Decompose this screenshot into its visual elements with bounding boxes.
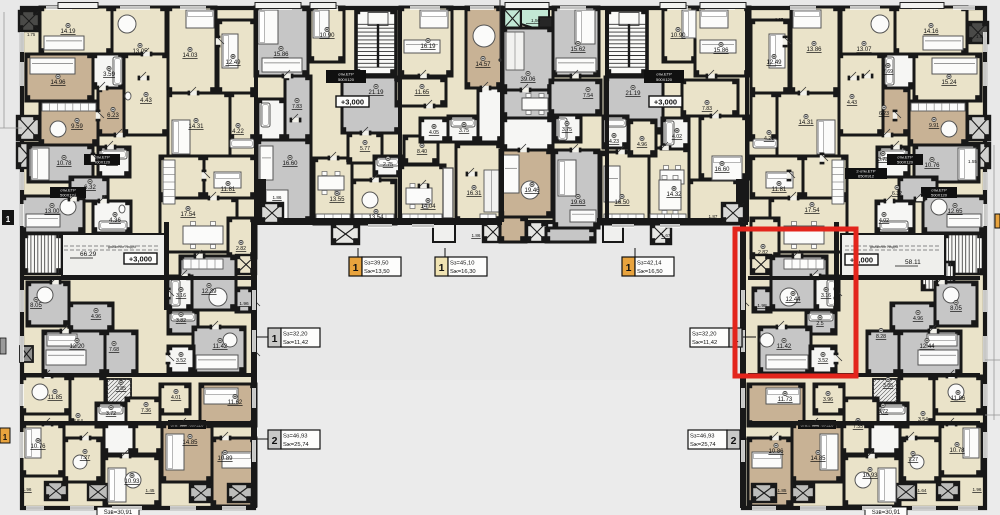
svg-text:10.93: 10.93 [124, 479, 140, 485]
svg-text:движение людей: движение людей [870, 245, 898, 249]
svg-text:+3,000: +3,000 [654, 98, 677, 107]
svg-text:1.96: 1.96 [23, 487, 32, 492]
svg-text:+3,000: +3,000 [341, 98, 364, 107]
svg-text:Sж=25,74: Sж=25,74 [283, 442, 309, 448]
svg-text:Sз=32,20: Sз=32,20 [692, 332, 716, 338]
svg-text:1.86: 1.86 [472, 233, 481, 238]
svg-text:11.73: 11.73 [778, 397, 793, 403]
svg-text:3.72: 3.72 [878, 409, 888, 415]
svg-text:6.32: 6.32 [84, 185, 96, 191]
svg-text:1.86: 1.86 [273, 195, 282, 200]
svg-text:14.32: 14.32 [666, 192, 682, 198]
svg-text:Sз=46,93: Sз=46,93 [690, 434, 714, 440]
svg-text:11.85: 11.85 [48, 395, 63, 401]
svg-text:1: 1 [439, 262, 445, 274]
svg-text:4.36: 4.36 [109, 218, 121, 224]
svg-text:15.86: 15.86 [273, 52, 289, 58]
svg-text:3.52: 3.52 [818, 358, 828, 364]
svg-text:14.85: 14.85 [182, 440, 198, 446]
svg-text:12.65: 12.65 [947, 209, 963, 215]
svg-text:5.77: 5.77 [360, 146, 370, 152]
svg-text:+3,000: +3,000 [129, 255, 152, 264]
svg-text:3.16: 3.16 [821, 293, 831, 299]
svg-text:10.93: 10.93 [862, 473, 878, 479]
svg-text:10.86: 10.86 [768, 449, 784, 455]
svg-text:15.24: 15.24 [941, 80, 957, 86]
svg-text:14.85: 14.85 [810, 456, 826, 462]
svg-text:19.63: 19.63 [570, 200, 586, 206]
svg-text:11.62: 11.62 [228, 400, 243, 406]
svg-text:16.50: 16.50 [614, 200, 630, 206]
svg-text:16.31: 16.31 [466, 191, 482, 197]
svg-text:19.46: 19.46 [524, 188, 540, 194]
svg-text:1.64: 1.64 [918, 488, 927, 493]
svg-text:14.31: 14.31 [188, 124, 204, 130]
svg-text:Sж=16,30: Sж=16,30 [450, 269, 476, 275]
svg-text:3.75: 3.75 [459, 128, 469, 134]
svg-text:3.72: 3.72 [106, 411, 116, 417]
svg-text:14.57: 14.57 [475, 62, 491, 68]
svg-text:13.86: 13.86 [806, 47, 822, 53]
svg-text:4.96: 4.96 [91, 314, 101, 320]
svg-text:16.60: 16.60 [714, 167, 730, 173]
svg-text:39.06: 39.06 [520, 77, 536, 83]
svg-text:Sж=13,50: Sж=13,50 [364, 269, 390, 275]
svg-text:4.43: 4.43 [847, 100, 857, 106]
svg-text:4.96: 4.96 [637, 142, 647, 148]
svg-text:11.65: 11.65 [415, 90, 430, 96]
svg-text:7.69: 7.69 [883, 69, 893, 75]
svg-text:4.43: 4.43 [140, 98, 152, 104]
svg-text:2: 2 [272, 435, 278, 447]
svg-text:отм.ЕТР: отм.ЕТР [656, 72, 672, 77]
svg-text:11.81: 11.81 [221, 187, 236, 193]
svg-text:500Х120: 500Х120 [94, 159, 111, 164]
svg-text:7.68: 7.68 [109, 347, 119, 353]
svg-text:4.01: 4.01 [171, 395, 181, 401]
svg-text:16.60: 16.60 [282, 161, 298, 167]
svg-text:1,50: 1,50 [531, 18, 541, 24]
svg-text:14.96: 14.96 [50, 80, 66, 86]
svg-text:1: 1 [353, 262, 359, 274]
svg-text:17.54: 17.54 [180, 212, 196, 218]
svg-text:1.45: 1.45 [146, 488, 155, 493]
svg-text:11.42: 11.42 [213, 344, 228, 350]
svg-text:13.07: 13.07 [856, 47, 872, 53]
svg-text:3.75: 3.75 [562, 127, 572, 133]
svg-text:+3,000: +3,000 [850, 256, 873, 265]
svg-text:9.91: 9.91 [929, 123, 939, 129]
svg-text:6.32: 6.32 [892, 191, 902, 197]
svg-text:12.44: 12.44 [785, 297, 801, 303]
svg-text:4.96: 4.96 [913, 316, 923, 322]
svg-text:4.05: 4.05 [429, 130, 439, 136]
svg-text:16.19: 16.19 [420, 44, 436, 50]
svg-text:7.27: 7.27 [80, 455, 90, 461]
svg-text:1: 1 [272, 333, 278, 345]
svg-text:3.85: 3.85 [883, 383, 893, 389]
svg-text:Sж=11,42: Sж=11,42 [692, 340, 717, 346]
svg-text:10.76: 10.76 [30, 444, 46, 450]
svg-text:Sж=25,74: Sж=25,74 [690, 442, 716, 448]
svg-text:Sзв=30,91: Sзв=30,91 [104, 510, 133, 515]
svg-text:14.04: 14.04 [420, 204, 436, 210]
svg-text:2.5: 2.5 [816, 321, 823, 327]
svg-text:650Х912: 650Х912 [858, 173, 875, 178]
svg-text:3.96: 3.96 [823, 397, 833, 403]
svg-text:9.59: 9.59 [71, 124, 83, 130]
svg-text:8.40: 8.40 [417, 149, 427, 155]
svg-text:11.42: 11.42 [777, 344, 792, 350]
svg-text:3.52: 3.52 [176, 358, 186, 364]
svg-text:1.55: 1.55 [968, 159, 977, 164]
svg-text:14.31: 14.31 [798, 120, 814, 126]
svg-text:7.27: 7.27 [908, 457, 918, 463]
svg-text:3.85: 3.85 [116, 386, 126, 392]
svg-text:4.22: 4.22 [232, 129, 244, 135]
svg-text:3.59: 3.59 [103, 72, 115, 78]
svg-text:1.96: 1.96 [973, 487, 982, 492]
svg-text:1.67: 1.67 [775, 17, 784, 22]
svg-text:Sз=45,10: Sз=45,10 [450, 261, 474, 267]
svg-text:Sж=11,42: Sж=11,42 [283, 340, 308, 346]
svg-text:1.85: 1.85 [778, 488, 787, 493]
svg-text:1.96: 1.96 [239, 301, 249, 307]
svg-text:12.44: 12.44 [919, 344, 935, 350]
svg-text:10.90: 10.90 [319, 33, 335, 39]
svg-text:6.23: 6.23 [879, 111, 889, 117]
svg-text:1: 1 [3, 433, 8, 442]
svg-text:2: 2 [731, 435, 737, 447]
svg-text:Sз=46,93: Sз=46,93 [283, 434, 307, 440]
svg-text:6.23: 6.23 [107, 113, 119, 119]
svg-text:3.73: 3.73 [878, 157, 888, 163]
svg-text:Sж=16,50: Sж=16,50 [637, 269, 663, 275]
svg-text:11.81: 11.81 [772, 187, 787, 193]
svg-text:10.78: 10.78 [949, 448, 965, 454]
svg-text:12.49: 12.49 [766, 60, 782, 66]
svg-text:8.05: 8.05 [950, 306, 962, 312]
svg-text:2.82: 2.82 [758, 250, 768, 256]
svg-text:8.28: 8.28 [876, 334, 886, 340]
svg-text:12.49: 12.49 [225, 60, 241, 66]
svg-text:12.39: 12.39 [201, 289, 217, 295]
svg-text:12.20: 12.20 [69, 344, 85, 350]
svg-text:2.82: 2.82 [236, 246, 246, 252]
svg-text:1: 1 [6, 215, 11, 224]
svg-text:7.54: 7.54 [583, 93, 593, 99]
svg-text:3.16: 3.16 [176, 293, 186, 299]
svg-text:14.03: 14.03 [182, 53, 198, 59]
svg-text:14.19: 14.19 [60, 29, 76, 35]
svg-text:4.21: 4.21 [764, 136, 774, 142]
svg-text:500Х120: 500Х120 [338, 77, 355, 82]
svg-text:66.29: 66.29 [80, 251, 97, 258]
svg-text:Sз=39,50: Sз=39,50 [364, 261, 388, 267]
svg-text:4.02: 4.02 [879, 218, 889, 224]
svg-text:4.02: 4.02 [672, 134, 682, 140]
svg-text:1.67: 1.67 [662, 233, 671, 238]
svg-text:21.19: 21.19 [368, 90, 384, 96]
svg-text:13.00: 13.00 [44, 209, 60, 215]
svg-text:Sзв=30,91: Sзв=30,91 [872, 510, 901, 515]
svg-text:10.89: 10.89 [217, 456, 233, 462]
svg-text:4.23: 4.23 [609, 139, 619, 145]
svg-text:13.55: 13.55 [329, 197, 345, 203]
svg-text:500Х120: 500Х120 [897, 159, 914, 164]
svg-text:15.62: 15.62 [570, 47, 586, 53]
svg-text:10.76: 10.76 [924, 163, 940, 169]
svg-text:500Х120: 500Х120 [656, 77, 673, 82]
svg-text:7.83: 7.83 [702, 106, 712, 112]
svg-text:14.16: 14.16 [923, 29, 939, 35]
svg-text:11.86: 11.86 [951, 396, 966, 402]
svg-text:7.83: 7.83 [292, 104, 302, 110]
svg-text:8.05: 8.05 [30, 303, 42, 309]
svg-text:10.78: 10.78 [56, 161, 72, 167]
svg-text:17.54: 17.54 [804, 208, 820, 214]
svg-text:Sз=32,20: Sз=32,20 [283, 332, 307, 338]
svg-text:1.98: 1.98 [757, 303, 767, 309]
svg-text:1.75: 1.75 [27, 32, 36, 37]
svg-text:1: 1 [626, 262, 632, 274]
svg-text:21.19: 21.19 [625, 91, 641, 97]
svg-text:500Х120: 500Х120 [931, 192, 948, 197]
svg-text:Sз=42,14: Sз=42,14 [637, 261, 662, 267]
svg-text:7.36: 7.36 [141, 408, 151, 414]
svg-text:58.11: 58.11 [905, 259, 921, 266]
svg-text:2.75: 2.75 [383, 162, 393, 168]
svg-text:отм.ЕТР: отм.ЕТР [338, 72, 354, 77]
svg-text:10.90: 10.90 [670, 33, 686, 39]
svg-text:15.86: 15.86 [713, 48, 729, 54]
svg-text:3.82: 3.82 [176, 318, 186, 324]
